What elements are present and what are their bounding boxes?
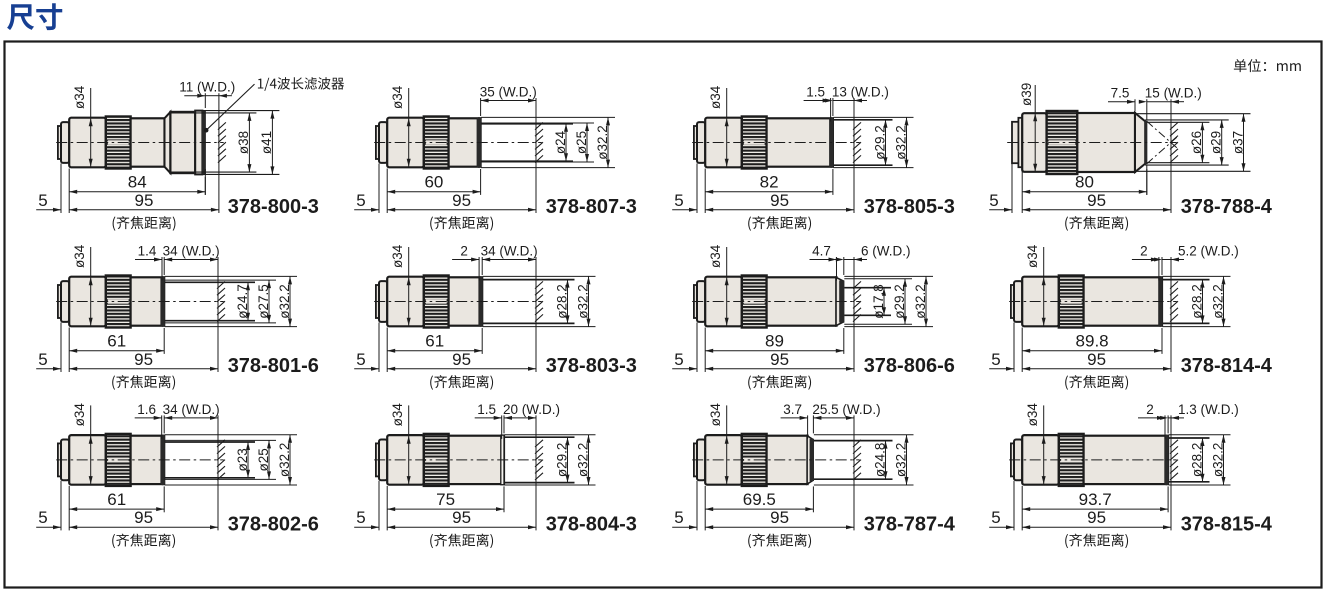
svg-text:95: 95 <box>770 191 789 210</box>
svg-text:5: 5 <box>356 350 365 369</box>
svg-text:378-814-4: 378-814-4 <box>1181 355 1273 377</box>
svg-text:5: 5 <box>674 191 683 210</box>
svg-text:95: 95 <box>452 350 471 369</box>
svg-text:95: 95 <box>1087 350 1106 369</box>
svg-text:ø34: ø34 <box>708 244 723 268</box>
svg-text:ø29.2: ø29.2 <box>892 284 907 319</box>
svg-text:35 (W.D.): 35 (W.D.) <box>480 85 537 100</box>
svg-text:5.2 (W.D.): 5.2 (W.D.) <box>1178 244 1239 259</box>
svg-text:ø34: ø34 <box>72 403 87 427</box>
svg-text:7.5: 7.5 <box>1111 86 1130 101</box>
svg-text:ø34: ø34 <box>708 85 723 109</box>
svg-text:ø32.2: ø32.2 <box>1210 284 1225 319</box>
svg-text:1.3 (W.D.): 1.3 (W.D.) <box>1178 402 1239 417</box>
svg-text:1.5: 1.5 <box>806 85 825 100</box>
svg-text:5: 5 <box>674 350 683 369</box>
svg-text:ø34: ø34 <box>72 244 87 268</box>
svg-text:25.5 (W.D.): 25.5 (W.D.) <box>812 402 880 417</box>
svg-text:378-800-3: 378-800-3 <box>228 196 319 218</box>
svg-text:13 (W.D.): 13 (W.D.) <box>832 85 889 100</box>
svg-text:3.7: 3.7 <box>783 402 802 417</box>
svg-text:ø34: ø34 <box>72 85 87 109</box>
svg-text:82: 82 <box>760 173 779 192</box>
svg-text:95: 95 <box>452 191 471 210</box>
svg-text:1.6: 1.6 <box>137 402 156 417</box>
svg-text:ø25: ø25 <box>256 448 271 471</box>
svg-text:ø17.8: ø17.8 <box>871 284 886 319</box>
svg-text:ø28.2: ø28.2 <box>554 284 569 319</box>
svg-text:5: 5 <box>989 191 998 210</box>
svg-text:ø24: ø24 <box>553 130 568 154</box>
svg-text:378-807-3: 378-807-3 <box>546 196 637 218</box>
svg-text:ø32.2: ø32.2 <box>893 443 908 478</box>
svg-text:ø34: ø34 <box>390 244 405 268</box>
svg-text:ø23: ø23 <box>235 448 250 471</box>
svg-text:80: 80 <box>1075 173 1094 192</box>
svg-text:4.7: 4.7 <box>812 244 831 259</box>
svg-text:61: 61 <box>107 332 126 351</box>
svg-text:ø32.2: ø32.2 <box>277 443 292 478</box>
svg-text:34 (W.D.): 34 (W.D.) <box>163 402 220 417</box>
svg-text:1.5: 1.5 <box>477 402 496 417</box>
svg-text:95: 95 <box>134 350 153 369</box>
svg-text:ø32.2: ø32.2 <box>575 443 590 478</box>
svg-text:ø29: ø29 <box>1209 131 1224 154</box>
svg-text:5: 5 <box>38 508 47 527</box>
svg-text:1.4: 1.4 <box>138 244 157 259</box>
svg-text:5: 5 <box>356 191 365 210</box>
svg-text:ø32.2: ø32.2 <box>893 125 908 160</box>
svg-text:95: 95 <box>1087 508 1106 527</box>
svg-text:378-804-3: 378-804-3 <box>546 513 637 535</box>
svg-text:ø25: ø25 <box>574 131 589 154</box>
svg-text:378-815-4: 378-815-4 <box>1181 513 1273 535</box>
svg-text:95: 95 <box>135 191 154 210</box>
svg-text:ø32.2: ø32.2 <box>575 284 590 319</box>
svg-text:ø32.2: ø32.2 <box>595 125 610 160</box>
svg-text:ø29.2: ø29.2 <box>872 125 887 160</box>
svg-text:11 (W.D.): 11 (W.D.) <box>179 80 235 95</box>
svg-text:ø41: ø41 <box>259 131 274 154</box>
svg-text:ø34: ø34 <box>1025 403 1040 427</box>
svg-text:ø32.2: ø32.2 <box>913 284 928 319</box>
svg-text:69.5: 69.5 <box>743 490 776 509</box>
svg-text:75: 75 <box>436 490 455 509</box>
svg-text:5: 5 <box>38 350 47 369</box>
svg-text:378-803-3: 378-803-3 <box>546 355 637 377</box>
svg-text:20 (W.D.): 20 (W.D.) <box>503 402 560 417</box>
svg-text:89: 89 <box>765 332 784 351</box>
svg-text:ø24.7: ø24.7 <box>235 284 250 319</box>
svg-text:ø34: ø34 <box>390 85 405 109</box>
svg-text:378-806-6: 378-806-6 <box>864 355 955 377</box>
svg-text:ø37: ø37 <box>1230 131 1245 154</box>
svg-text:95: 95 <box>1087 191 1106 210</box>
svg-text:6 (W.D.): 6 (W.D.) <box>861 244 911 259</box>
svg-text:95: 95 <box>770 350 789 369</box>
svg-text:89.8: 89.8 <box>1076 332 1109 351</box>
svg-text:ø26: ø26 <box>1189 131 1204 154</box>
svg-text:2: 2 <box>460 244 468 259</box>
svg-text:2: 2 <box>1146 402 1154 417</box>
svg-text:ø32.2: ø32.2 <box>277 284 292 319</box>
svg-text:ø27.5: ø27.5 <box>256 284 271 319</box>
svg-text:ø28.2: ø28.2 <box>1189 443 1204 478</box>
svg-text:ø29.2: ø29.2 <box>554 443 569 478</box>
svg-text:ø34: ø34 <box>1025 244 1040 268</box>
svg-text:60: 60 <box>424 173 443 192</box>
svg-text:ø39: ø39 <box>1019 83 1034 106</box>
svg-text:95: 95 <box>134 508 153 527</box>
svg-text:84: 84 <box>128 173 147 192</box>
svg-text:5: 5 <box>991 508 1000 527</box>
svg-text:378-805-3: 378-805-3 <box>864 196 955 218</box>
svg-text:5: 5 <box>674 508 683 527</box>
svg-text:378-801-6: 378-801-6 <box>228 355 319 377</box>
svg-text:61: 61 <box>425 332 444 351</box>
svg-text:ø28.2: ø28.2 <box>1189 284 1204 319</box>
svg-text:34 (W.D.): 34 (W.D.) <box>481 244 538 259</box>
svg-text:ø32.2: ø32.2 <box>1210 443 1225 478</box>
svg-text:95: 95 <box>770 508 789 527</box>
svg-text:93.7: 93.7 <box>1079 490 1112 509</box>
svg-text:ø34: ø34 <box>390 403 405 427</box>
svg-text:ø34: ø34 <box>708 403 723 427</box>
svg-text:5: 5 <box>991 350 1000 369</box>
svg-text:34 (W.D.): 34 (W.D.) <box>163 244 220 259</box>
svg-text:378-788-4: 378-788-4 <box>1181 196 1273 218</box>
svg-text:ø38: ø38 <box>236 131 251 154</box>
svg-text:95: 95 <box>452 508 471 527</box>
svg-text:15 (W.D.): 15 (W.D.) <box>1145 86 1202 101</box>
svg-text:61: 61 <box>107 490 126 509</box>
svg-text:2: 2 <box>1140 244 1148 259</box>
svg-text:378-802-6: 378-802-6 <box>228 513 319 535</box>
svg-text:378-787-4: 378-787-4 <box>864 513 956 535</box>
svg-text:5: 5 <box>38 191 47 210</box>
svg-text:ø24.8: ø24.8 <box>872 443 887 478</box>
svg-text:5: 5 <box>356 508 365 527</box>
